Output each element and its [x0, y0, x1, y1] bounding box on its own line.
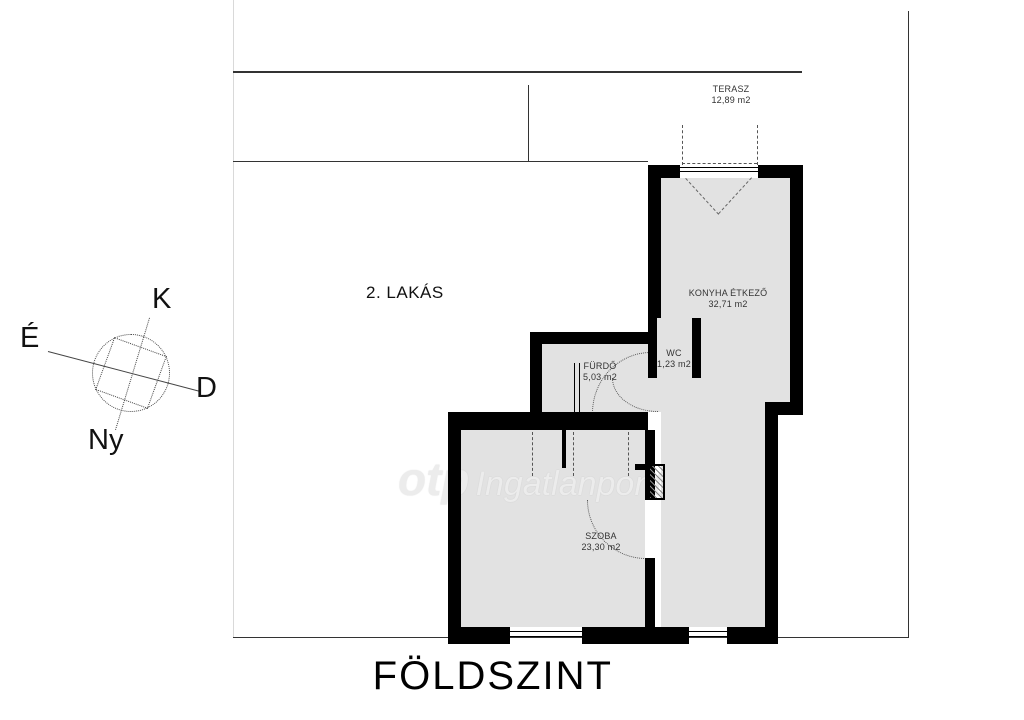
lot-line-bottom	[233, 637, 909, 638]
lot-line-top	[233, 71, 802, 73]
room-area: 5,03 m2	[583, 372, 617, 383]
inner-line-hook	[528, 85, 529, 162]
room-name: TERASZ	[711, 84, 750, 95]
furdo-radiator-line-1	[574, 363, 575, 412]
konyha-right-wall-upper	[790, 165, 803, 415]
konyha-fill-lower	[661, 415, 765, 627]
watermark: otpIngatlanpont	[398, 452, 663, 506]
wc-right-wall	[692, 318, 701, 378]
szoba-dashed-mark-3	[628, 432, 629, 476]
compass-label-west: Ny	[88, 424, 123, 457]
compass-label-north: É	[20, 322, 39, 355]
furdo-radiator-line-2	[579, 363, 580, 412]
szoba-left-wall	[448, 412, 461, 644]
konyha-window-line-2	[689, 636, 727, 637]
szoba-window-line-2	[510, 636, 582, 637]
lot-boundary-right	[908, 11, 909, 638]
right-wall-lower	[765, 402, 778, 644]
furdo-left-wall	[530, 332, 542, 412]
wc-left-wall	[648, 318, 657, 378]
szoba-window-line-1	[510, 631, 582, 632]
bottom-wall-segment-2	[582, 627, 689, 644]
inner-line-horizontal	[233, 161, 648, 162]
bottom-wall-segment-1	[448, 627, 510, 644]
terrace-dashed-left	[682, 125, 683, 165]
bottom-wall-segment-3	[727, 627, 776, 644]
room-label-terasz: TERASZ 12,89 m2	[711, 84, 750, 107]
terrace-dashed-bottom	[682, 163, 757, 164]
mid-wall	[448, 412, 648, 430]
konyha-left-wall	[648, 165, 661, 318]
flue-shaft	[648, 464, 665, 500]
szoba-wall-stub	[562, 430, 566, 468]
compass-label-east: K	[152, 283, 171, 316]
room-label-szoba: SZOBA 23,30 m2	[581, 531, 620, 554]
szoba-dashed-mark-2	[573, 432, 574, 476]
room-area: 23,30 m2	[581, 542, 620, 553]
room-name: SZOBA	[581, 531, 620, 542]
room-area: 1,23 m2	[657, 359, 691, 370]
compass-label-south: D	[196, 372, 217, 405]
terrace-door-glass-line-2	[680, 171, 758, 172]
szoba-dashed-mark-1	[532, 432, 533, 476]
room-label-konyha-etkezo: KONYHA ÉTKEZŐ 32,71 m2	[689, 288, 768, 311]
furdo-top-wall	[530, 332, 648, 344]
room-name: KONYHA ÉTKEZŐ	[689, 288, 768, 299]
watermark-name: Ingatlanpont	[476, 465, 663, 503]
room-label-wc: WC 1,23 m2	[657, 348, 691, 371]
divider-wall-lower	[645, 558, 655, 627]
room-area: 12,89 m2	[711, 95, 750, 106]
flue-stub-wall	[635, 464, 648, 470]
lot-boundary-left	[233, 0, 234, 638]
room-name: FÜRDŐ	[583, 361, 617, 372]
apartment-label: 2. LAKÁS	[366, 283, 444, 303]
room-label-furdo: FÜRDŐ 5,03 m2	[583, 361, 617, 384]
terrace-door-glass-line-1	[680, 167, 758, 168]
floor-title: FÖLDSZINT	[373, 654, 613, 699]
floor-plan: otpIngatlanpont K É D Ny	[0, 0, 1024, 720]
room-area: 32,71 m2	[689, 299, 768, 310]
room-name: WC	[657, 348, 691, 359]
konyha-window-line-1	[689, 631, 727, 632]
terrace-dashed-right	[757, 125, 758, 165]
